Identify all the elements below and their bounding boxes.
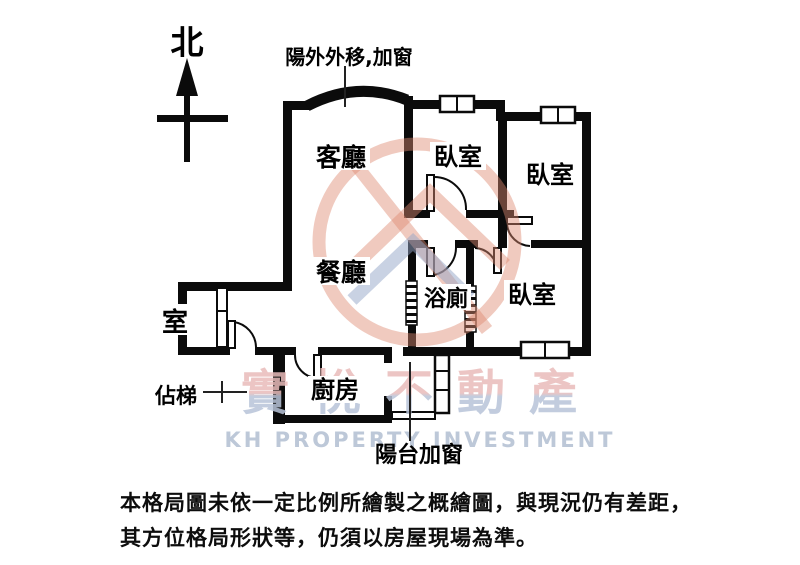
wall-segment	[582, 112, 591, 356]
balcony-arch-wall	[307, 91, 407, 106]
dining-room-label: 餐廳	[316, 258, 366, 287]
wall-segment	[178, 347, 230, 355]
north-arrow-crossbar	[157, 115, 228, 122]
compass: 北	[157, 23, 228, 162]
disclaimer-line-1: 本格局圖未依一定比例所繪製之概繪圖，與現況仍有差距，	[120, 491, 692, 515]
door-arc	[234, 322, 256, 347]
watermark-brand-text: 實悅不動產	[241, 365, 601, 421]
stairs-label: 佔梯	[154, 384, 197, 408]
balcony-note-label: 陽台加窗	[375, 442, 463, 468]
kitchen-label: 廚房	[311, 376, 359, 404]
north-label: 北	[171, 23, 204, 62]
wall-segment	[283, 101, 309, 110]
small-room-label: 室	[162, 307, 188, 338]
door-leaf	[228, 321, 235, 348]
partition-window	[217, 288, 227, 347]
floor-plan-canvas: 實悅不動產 KH PROPERTY INVESTMENT 北 客廳 臥室 臥室 …	[0, 0, 800, 565]
wall-segment	[318, 347, 392, 355]
wall-segment	[384, 347, 392, 363]
floor-plan-page: 實悅不動產 KH PROPERTY INVESTMENT 北 客廳 臥室 臥室 …	[0, 0, 800, 565]
disclaimer: 本格局圖未依一定比例所繪製之概繪圖，與現況仍有差距， 其方位格局形狀等，仍須以房…	[120, 491, 692, 550]
bedroom3-label: 臥室	[508, 281, 556, 309]
living-room-label: 客廳	[316, 143, 366, 172]
bedroom1-label: 臥室	[434, 143, 482, 171]
bedroom2-label: 臥室	[526, 161, 574, 189]
top-note-label: 陽外外移,加窗	[285, 45, 413, 69]
bathroom-label: 浴廁	[424, 286, 468, 312]
disclaimer-line-2: 其方位格局形狀等，仍須以房屋現場為準。	[120, 526, 538, 550]
wall-segment	[283, 101, 292, 287]
wall-segment	[404, 96, 413, 218]
wall-segment	[531, 240, 590, 248]
north-arrow-head	[176, 58, 198, 96]
wall-segment	[178, 282, 292, 291]
